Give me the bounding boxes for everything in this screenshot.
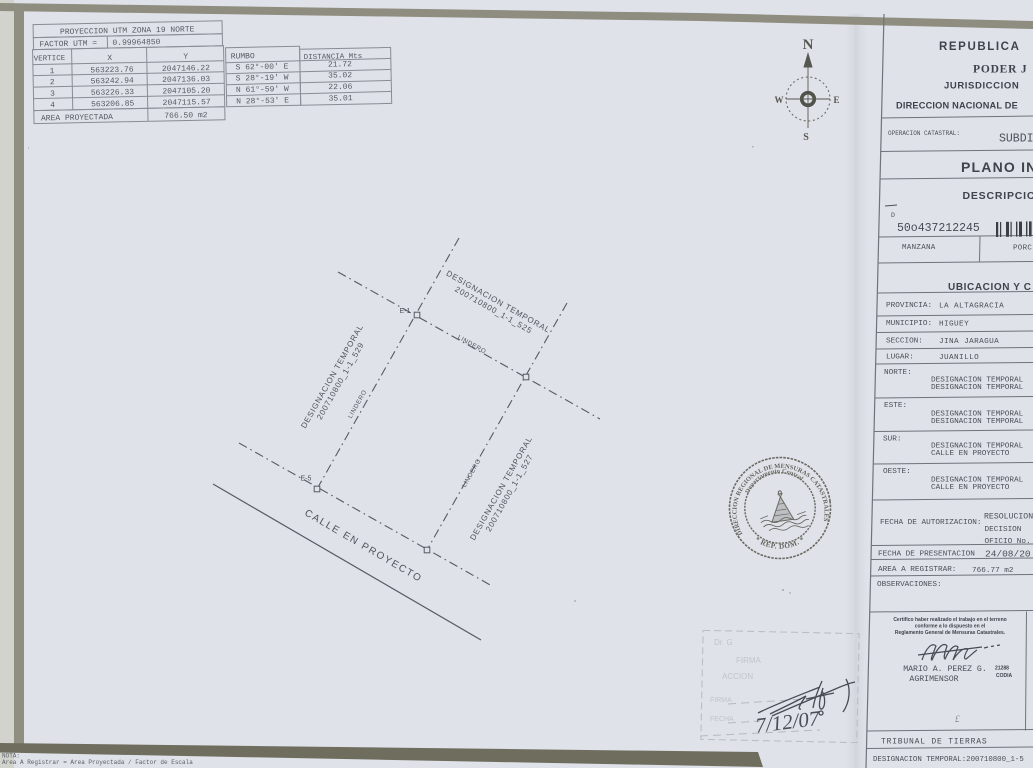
svg-text:MANZANA: MANZANA xyxy=(902,244,936,252)
svg-text:N: N xyxy=(803,37,814,53)
svg-text:D: D xyxy=(891,212,895,219)
svg-text:OBSERVACIONES:: OBSERVACIONES: xyxy=(877,581,942,589)
svg-text:766.50 m2: 766.50 m2 xyxy=(164,111,208,121)
svg-text:JINA JARAGUA: JINA JARAGUA xyxy=(939,338,999,346)
svg-text:AREA PROYECTADA: AREA PROYECTADA xyxy=(41,113,113,123)
svg-text:N 61°-59' W: N 61°-59' W xyxy=(236,85,289,95)
svg-text:2047105.20: 2047105.20 xyxy=(162,87,210,97)
svg-text:PORCIO: PORCIO xyxy=(1013,245,1033,253)
svg-text:35.01: 35.01 xyxy=(329,94,353,103)
svg-text:24/08/20: 24/08/20 xyxy=(985,549,1031,560)
svg-text:ACCION: ACCION xyxy=(722,672,753,681)
svg-text:DESCRIPCIO: DESCRIPCIO xyxy=(963,190,1033,202)
svg-text:SUBDI: SUBDI xyxy=(999,133,1033,146)
svg-text:S: S xyxy=(803,132,809,143)
svg-text:NORTE:: NORTE: xyxy=(884,369,912,377)
svg-text:PROVINCIA:: PROVINCIA: xyxy=(886,302,932,310)
svg-text:FIRMA: FIRMA xyxy=(710,697,732,704)
svg-text:Y: Y xyxy=(183,52,188,61)
svg-text:PLANO IN: PLANO IN xyxy=(961,159,1033,175)
svg-text:4: 4 xyxy=(50,101,55,110)
svg-text:W: W xyxy=(775,95,784,105)
svg-text:OPERACION CATASTRAL:: OPERACION CATASTRAL: xyxy=(888,130,960,137)
svg-text:SUR:: SUR: xyxy=(883,436,901,444)
svg-text:Certifico haber realizado el t: Certifico haber realizado el trabajo en … xyxy=(893,617,1006,623)
svg-text:FECHA: FECHA xyxy=(710,716,734,723)
svg-text:563223.76: 563223.76 xyxy=(90,66,134,76)
svg-text:S 62°-00' E: S 62°-00' E xyxy=(235,62,288,72)
svg-text:E-5: E-5 xyxy=(301,476,312,483)
svg-text:LA ALTAGRACIA: LA ALTAGRACIA xyxy=(939,303,1004,311)
svg-text:AREA A REGISTRAR:: AREA A REGISTRAR: xyxy=(878,566,956,574)
svg-text:MUNICIPIO:: MUNICIPIO: xyxy=(886,320,932,328)
svg-text:JUANILLO: JUANILLO xyxy=(939,354,979,362)
svg-text:Dr. G: Dr. G xyxy=(714,638,733,647)
svg-text:OFICIO No.: OFICIO No. xyxy=(985,538,1031,546)
svg-text:2047115.57: 2047115.57 xyxy=(163,98,211,108)
svg-text:21.72: 21.72 xyxy=(328,60,352,69)
svg-text:563242.94: 563242.94 xyxy=(91,77,135,87)
svg-text:OESTE:: OESTE: xyxy=(883,468,911,476)
svg-text:REPUBLICA: REPUBLICA xyxy=(939,41,1021,53)
svg-text:563206.85: 563206.85 xyxy=(91,100,135,110)
svg-text:PODER J: PODER J xyxy=(973,64,1027,76)
svg-text:21288: 21288 xyxy=(995,666,1009,672)
svg-text:0.99964850: 0.99964850 xyxy=(112,38,160,48)
svg-text:conforme a lo dispuesto en el: conforme a lo dispuesto en el xyxy=(915,624,986,630)
svg-text:CODIA: CODIA xyxy=(996,673,1013,679)
svg-text:CALLE EN PROYECTO: CALLE EN PROYECTO xyxy=(931,450,1010,458)
svg-text:JURISDICCION: JURISDICCION xyxy=(944,81,1019,92)
svg-text:£: £ xyxy=(955,714,960,724)
svg-text:UBICACION Y C: UBICACION Y C xyxy=(948,282,1032,293)
svg-text:AGRIMENSOR: AGRIMENSOR xyxy=(909,675,958,684)
svg-text:3: 3 xyxy=(50,90,55,99)
svg-text:MARIO A. PEREZ G.: MARIO A. PEREZ G. xyxy=(903,665,987,674)
svg-text:E: E xyxy=(833,95,839,105)
svg-text:DESIGNACION TEMPORAL: DESIGNACION TEMPORAL xyxy=(931,418,1024,426)
svg-text:TRIBUNAL DE TIERRAS: TRIBUNAL DE TIERRAS xyxy=(881,738,987,747)
svg-text:ESTE:: ESTE: xyxy=(884,402,907,410)
svg-text:DESIGNACION TEMPORAL: DESIGNACION TEMPORAL xyxy=(931,384,1024,392)
svg-text:RESOLUCION: RESOLUCION xyxy=(984,513,1033,522)
svg-text:Area A Registrar = Area Proyec: Area A Registrar = Area Proyectada / Fac… xyxy=(2,759,193,766)
svg-text:HIGUEY: HIGUEY xyxy=(939,321,969,329)
svg-text:2047146.22: 2047146.22 xyxy=(162,64,210,74)
svg-text:2: 2 xyxy=(50,78,55,87)
svg-text:X: X xyxy=(107,54,112,63)
svg-text:50o437212245: 50o437212245 xyxy=(897,222,980,235)
svg-text:N 28°-53' E: N 28°-53' E xyxy=(236,96,289,106)
svg-text:563226.33: 563226.33 xyxy=(91,88,135,98)
svg-text:DESIGNACION TEMPORAL:200710800: DESIGNACION TEMPORAL:200710800_1-5 xyxy=(873,756,1024,764)
svg-text:766.77 m2: 766.77 m2 xyxy=(972,567,1014,575)
svg-text:VERTICE: VERTICE xyxy=(34,55,66,64)
svg-text:2047136.03: 2047136.03 xyxy=(162,75,210,85)
svg-text:FIRMA: FIRMA xyxy=(736,656,762,665)
svg-text:FECHA DE PRESENTACION: FECHA DE PRESENTACION xyxy=(878,551,975,559)
svg-text:RUMBO: RUMBO xyxy=(231,52,255,61)
svg-text:DIRECCION NACIONAL DE: DIRECCION NACIONAL DE xyxy=(896,101,1018,111)
svg-text:SECCION:: SECCION: xyxy=(886,338,923,346)
svg-text:DECISION: DECISION xyxy=(985,526,1022,534)
svg-text:FECHA DE AUTORIZACION:: FECHA DE AUTORIZACION: xyxy=(880,519,982,527)
svg-text:35.02: 35.02 xyxy=(328,71,352,80)
svg-text:1: 1 xyxy=(50,67,55,76)
svg-text:E-1: E-1 xyxy=(400,308,411,315)
svg-text:S 28°-19' W: S 28°-19' W xyxy=(236,73,289,83)
svg-text:Reglamento General de Mensuras: Reglamento General de Mensuras Catastral… xyxy=(895,630,1006,636)
svg-text:22.06: 22.06 xyxy=(328,83,352,92)
svg-text:’: ’ xyxy=(752,145,754,154)
svg-text:FACTOR UTM =: FACTOR UTM = xyxy=(39,39,97,49)
svg-text:CALLE EN PROYECTO: CALLE EN PROYECTO xyxy=(931,484,1010,492)
svg-text:LUGAR:: LUGAR: xyxy=(886,354,914,362)
